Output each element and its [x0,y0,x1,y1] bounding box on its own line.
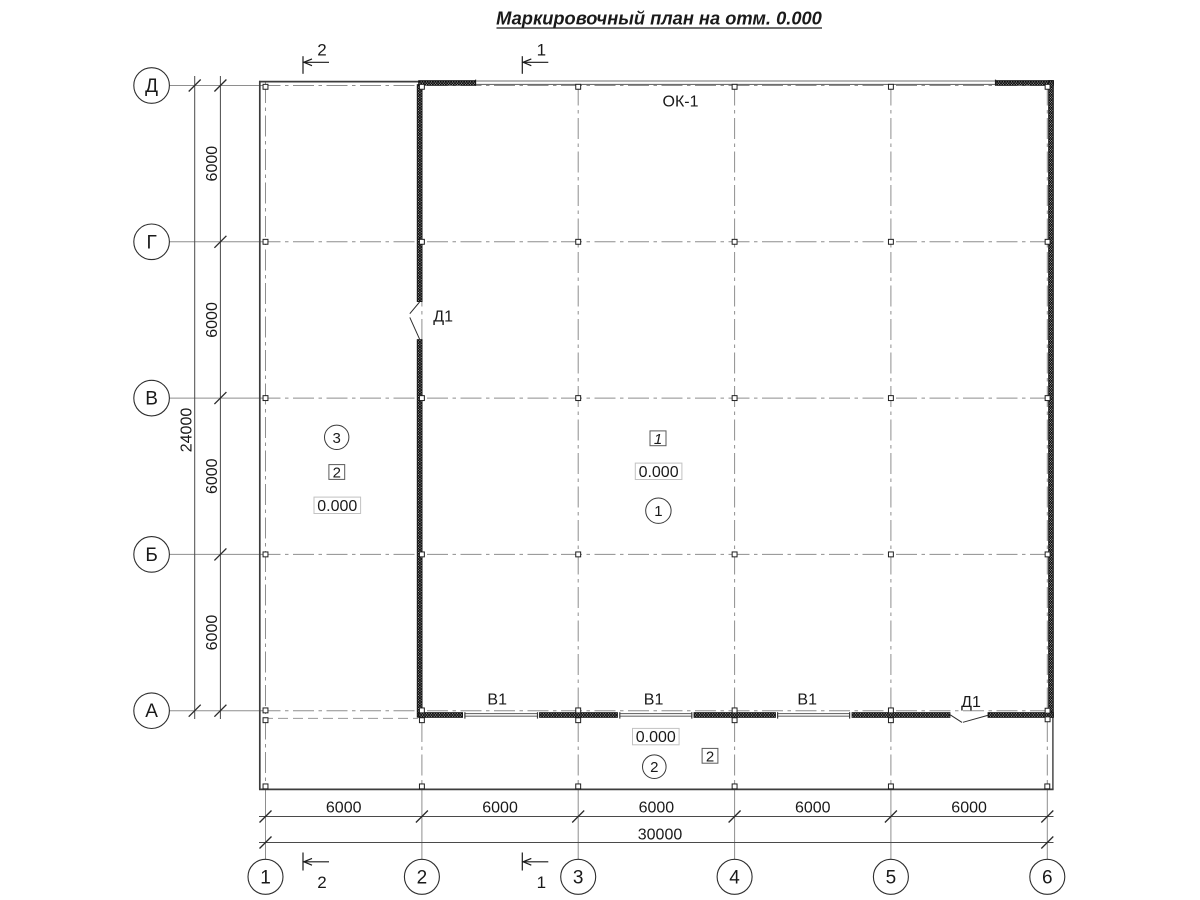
svg-text:0.000: 0.000 [636,729,676,746]
svg-text:2: 2 [333,465,341,482]
svg-text:2: 2 [706,748,714,765]
svg-text:3: 3 [573,867,584,888]
svg-text:0.000: 0.000 [639,464,679,481]
svg-text:5: 5 [886,867,897,888]
svg-text:6000: 6000 [326,800,362,817]
svg-text:0.000: 0.000 [317,498,357,515]
svg-text:1: 1 [260,867,271,888]
svg-text:А: А [145,701,158,722]
svg-text:24000: 24000 [179,408,196,453]
svg-text:Д: Д [145,76,158,97]
svg-text:Д1: Д1 [433,309,453,326]
svg-text:1: 1 [537,873,546,892]
svg-text:3: 3 [333,430,341,447]
svg-text:Б: Б [145,545,157,566]
svg-text:6000: 6000 [482,800,518,817]
svg-text:1: 1 [654,431,662,448]
svg-text:6: 6 [1042,867,1053,888]
svg-text:6000: 6000 [204,146,221,182]
svg-text:6000: 6000 [795,800,831,817]
svg-text:Г: Г [146,232,156,253]
svg-text:6000: 6000 [204,458,221,494]
svg-text:6000: 6000 [639,800,675,817]
svg-text:1: 1 [537,41,546,60]
svg-text:2: 2 [317,873,326,892]
svg-text:2: 2 [317,41,326,60]
svg-text:В1: В1 [487,692,507,709]
svg-text:4: 4 [729,867,740,888]
svg-text:6000: 6000 [204,302,221,338]
svg-text:2: 2 [417,867,428,888]
svg-text:Маркировочный план на отм. 0.0: Маркировочный план на отм. 0.000 [496,8,822,29]
svg-text:Д1: Д1 [961,694,981,711]
svg-text:30000: 30000 [638,827,683,844]
svg-text:ОК-1: ОК-1 [663,94,699,111]
svg-text:В1: В1 [797,692,817,709]
svg-text:6000: 6000 [951,800,987,817]
svg-text:В: В [145,389,158,410]
svg-text:1: 1 [654,503,662,520]
svg-text:2: 2 [650,759,658,776]
svg-text:В1: В1 [644,692,664,709]
svg-text:6000: 6000 [204,615,221,651]
